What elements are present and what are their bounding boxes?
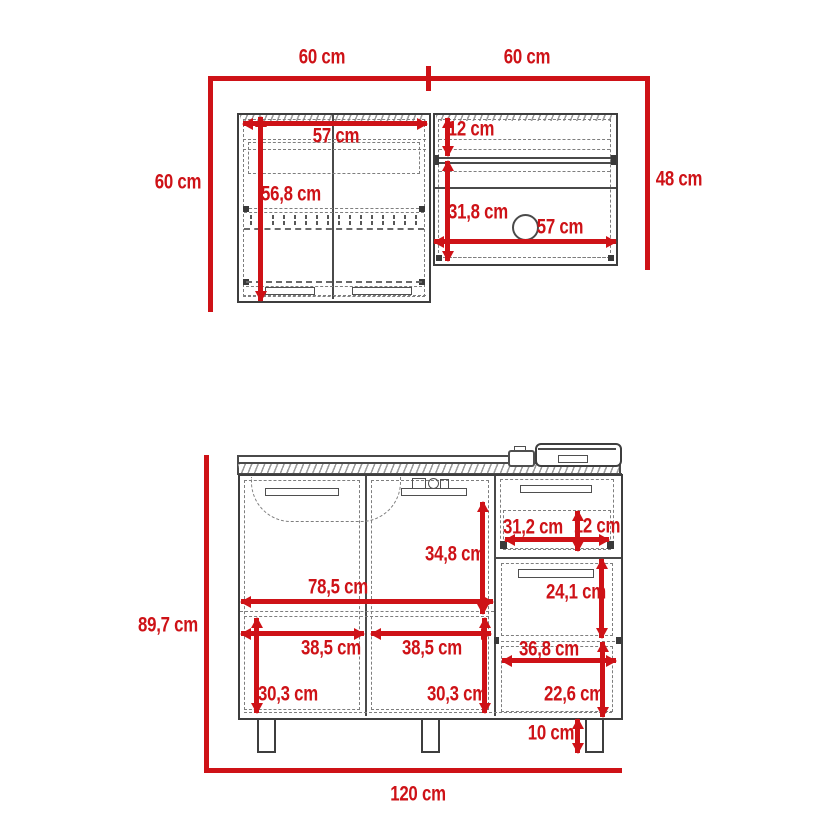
upper-right-dashed-line-2 bbox=[439, 149, 610, 150]
stove-burner-detail bbox=[558, 455, 588, 463]
dish-rack-teeth-row-2 bbox=[250, 221, 420, 225]
middle-door-inner-dashed bbox=[371, 480, 489, 710]
cabinet-leg-left bbox=[257, 718, 276, 753]
faucet-detail-3 bbox=[440, 479, 449, 489]
rail-end-cap-left bbox=[434, 155, 439, 165]
dish-rack-top-dashed-1 bbox=[244, 208, 424, 209]
dim-label-top-drawer-height: 12 cm bbox=[574, 516, 620, 537]
dim-arrow-middle-door-width bbox=[371, 631, 491, 636]
dim-label-double-door-width: 78,5 cm bbox=[308, 577, 368, 598]
dim-label-upper-right-height: 48 cm bbox=[656, 169, 702, 190]
dish-rack-top-dashed-2 bbox=[244, 212, 424, 213]
upper-right-bracket-drop bbox=[645, 76, 650, 270]
upper-span-middle-tick bbox=[426, 66, 431, 91]
dim-arrow-double-door-width bbox=[241, 599, 493, 604]
cabinet-bottom-dashed-line bbox=[244, 712, 612, 713]
dim-label-lower-total-height: 89,7 cm bbox=[138, 615, 198, 636]
stemware-rack-block-1 bbox=[265, 287, 315, 295]
upper-right-dashed-line-3 bbox=[439, 171, 610, 172]
shelf-pin-left bbox=[494, 637, 499, 644]
right-section-divider-line bbox=[494, 476, 496, 716]
stemware-rack-wavy-line-1 bbox=[246, 281, 422, 283]
dim-label-middle-door-width: 38,5 cm bbox=[402, 638, 462, 659]
dim-label-upper-compartment-height: 34,8 cm bbox=[425, 544, 485, 565]
dim-arrow-left-door-width bbox=[241, 631, 364, 636]
upper-right-rail-line-1 bbox=[436, 157, 615, 159]
dim-label-top-drawer-width: 31,2 cm bbox=[503, 517, 563, 538]
upper-left-bracket-drop bbox=[208, 76, 213, 312]
dim-label-middle-compartment-height: 30,3 cm bbox=[427, 684, 487, 705]
dim-label-upper-left-width: 57 cm bbox=[313, 126, 359, 147]
shelf-pin-right bbox=[616, 637, 621, 644]
lower-height-bracket-line bbox=[204, 455, 209, 773]
hinge-mark-upper-right-2 bbox=[608, 255, 614, 261]
doors-shelf-dashed-line-1 bbox=[240, 611, 494, 612]
dim-label-lower-total-width: 120 cm bbox=[390, 784, 446, 805]
countertop-back-edge bbox=[237, 455, 512, 457]
stemware-rack-block-2 bbox=[352, 287, 412, 295]
middle-door-handle bbox=[401, 488, 467, 496]
left-door-handle bbox=[265, 488, 339, 496]
hinge-mark-upper-left-1 bbox=[243, 206, 249, 212]
dim-label-upper-left-height: 60 cm bbox=[155, 172, 201, 193]
dim-label-upper-span-left: 60 cm bbox=[299, 47, 345, 68]
doors-shelf-dashed-line-2 bbox=[244, 616, 489, 617]
dim-arrow-upper-right-width bbox=[434, 239, 616, 244]
dim-label-upper-right-inner-height: 31,8 cm bbox=[448, 202, 508, 223]
cabinet-leg-middle bbox=[421, 718, 440, 753]
dim-label-right-door-height: 22,6 cm bbox=[544, 684, 604, 705]
dish-rack-bottom-wavy-line bbox=[244, 228, 424, 230]
dim-label-left-door-width: 38,5 cm bbox=[301, 638, 361, 659]
stove-knob bbox=[508, 450, 535, 467]
cabinet-leg-right bbox=[585, 718, 604, 753]
rail-end-cap-right bbox=[611, 155, 616, 165]
upper-left-bottom-dashed bbox=[243, 295, 426, 296]
dim-arrow-upper-left-inner-height bbox=[258, 117, 263, 301]
faucet-detail-1 bbox=[412, 478, 426, 489]
dim-label-upper-span-right: 60 cm bbox=[504, 47, 550, 68]
hinge-mark-upper-left-2 bbox=[419, 206, 425, 212]
dim-arrow-right-door-height bbox=[600, 642, 605, 717]
dim-label-upper-right-width: 57 cm bbox=[537, 217, 583, 238]
upper-right-shelf-line bbox=[435, 187, 616, 189]
cable-hole-circle bbox=[512, 214, 539, 241]
upper-right-rail-line-2 bbox=[436, 162, 615, 164]
dimension-drawing-page: 60 cm 60 cm 60 cm 48 cm 57 cm 56,8 cm bbox=[0, 0, 840, 840]
dim-label-right-compartment-width: 36,8 cm bbox=[519, 639, 579, 660]
faucet-detail-2 bbox=[428, 478, 439, 489]
dim-label-upper-left-inner-height: 56,8 cm bbox=[261, 184, 321, 205]
dim-label-leg-height: 10 cm bbox=[528, 723, 574, 744]
dim-arrow-leg-height bbox=[575, 719, 580, 753]
upper-right-bottom-dashed bbox=[439, 257, 610, 258]
stove-inner-line bbox=[538, 448, 616, 450]
dim-label-left-compartment-height: 30,3 cm bbox=[258, 684, 318, 705]
dim-label-middle-drawer-height: 24,1 cm bbox=[546, 582, 606, 603]
dish-rack-teeth-row-1 bbox=[250, 215, 420, 219]
sink-hidden-outline bbox=[251, 477, 401, 522]
dim-label-upper-right-top-offset: 12 cm bbox=[448, 119, 494, 140]
lower-width-bracket-line bbox=[204, 768, 622, 773]
